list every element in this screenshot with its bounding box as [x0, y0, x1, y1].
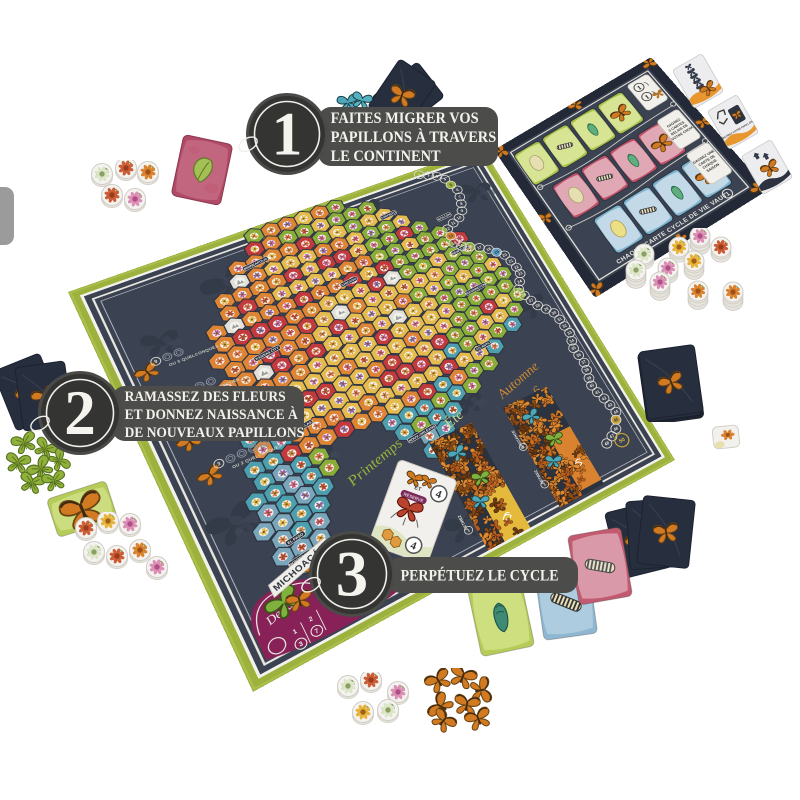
svg-text:PERPÉTUEZ LE CYCLE: PERPÉTUEZ LE CYCLE	[401, 567, 559, 585]
svg-text:3: 3	[336, 539, 368, 610]
svg-text:FAITES MIGRER VOS: FAITES MIGRER VOS	[331, 109, 479, 127]
svg-text:ET DONNEZ NAISSANCE À: ET DONNEZ NAISSANCE À	[125, 405, 299, 423]
svg-text:PAPILLONS À TRAVERS: PAPILLONS À TRAVERS	[331, 128, 497, 146]
svg-text:RAMASSEZ DES FLEURS: RAMASSEZ DES FLEURS	[125, 388, 286, 405]
svg-text:2: 2	[64, 378, 96, 448]
svg-text:DE NOUVEAUX PAPILLONS: DE NOUVEAUX PAPILLONS	[125, 424, 304, 441]
svg-text:LE CONTINENT: LE CONTINENT	[331, 147, 441, 165]
svg-text:1: 1	[272, 101, 303, 169]
